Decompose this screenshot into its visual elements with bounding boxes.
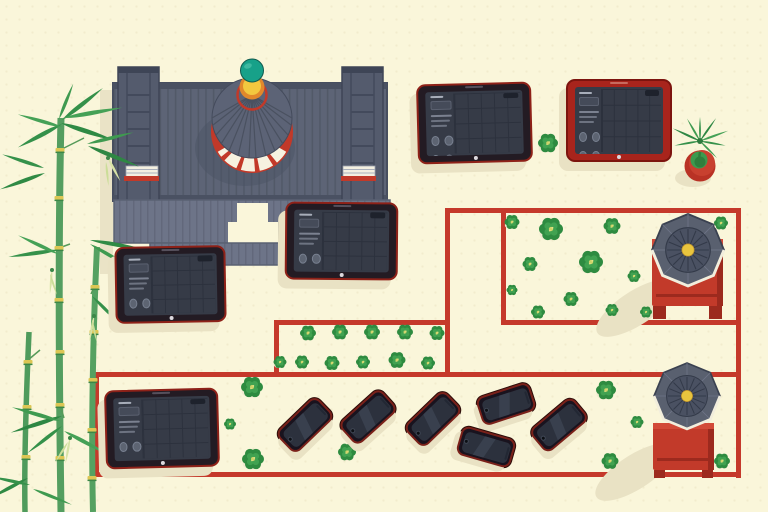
tablet-screen-button <box>503 92 519 98</box>
phone-device <box>337 387 399 447</box>
tablet-calendar-grid <box>150 255 215 313</box>
sidebar-icon-row <box>431 136 454 147</box>
tablet-calendar-grid <box>321 212 387 271</box>
sidebar-icon-row <box>129 299 151 309</box>
phone-device <box>402 389 463 449</box>
tablet-speaker <box>333 205 351 207</box>
sidebar-icon-row <box>299 254 321 264</box>
tablet-screen <box>113 396 211 461</box>
phone-device <box>528 396 590 455</box>
sidebar-icon-row <box>579 151 599 154</box>
tablet-screen <box>575 87 663 154</box>
tablet-screen-sidebar <box>430 96 454 152</box>
device-layer <box>0 0 768 512</box>
illustration-stage <box>0 0 768 512</box>
tablet-screen-sidebar <box>299 214 321 268</box>
tablet-screen-sidebar <box>579 92 599 150</box>
tablet-screen-button <box>370 213 385 219</box>
tablet-screen-sidebar <box>118 402 141 457</box>
phone-screen <box>534 402 584 448</box>
phone-device <box>475 381 538 427</box>
tablet-screen <box>123 253 217 316</box>
tablet-device <box>104 388 220 470</box>
tablet-logo <box>617 155 621 159</box>
tablet-screen-button <box>198 256 213 262</box>
phone-screen <box>344 393 393 440</box>
sidebar-icon-row <box>432 155 455 156</box>
tablet-screen-sidebar <box>128 259 150 312</box>
tablet-logo <box>161 461 165 465</box>
tablet-speaker <box>610 82 628 84</box>
phone-device <box>274 395 335 455</box>
tablet-calendar-grid <box>453 92 521 154</box>
phone-screen <box>281 401 329 449</box>
tablet-calendar-grid <box>141 398 209 459</box>
tablet-screen-button <box>645 90 659 96</box>
tablet-device <box>416 82 533 165</box>
phone-device <box>455 425 517 469</box>
tablet-logo <box>169 316 173 320</box>
sidebar-icon-row <box>579 132 599 142</box>
tablet-device <box>285 202 399 281</box>
sidebar-icon-row <box>119 442 141 453</box>
tablet-calendar-grid <box>601 89 662 152</box>
tablet-device <box>566 79 672 162</box>
tablet-logo <box>339 273 343 277</box>
tablet-screen-button <box>190 398 206 404</box>
tablet-device <box>114 245 226 324</box>
tablet-speaker <box>161 249 179 251</box>
tablet-screen <box>425 90 524 157</box>
phone-screen <box>409 395 457 443</box>
tablet-screen <box>294 210 390 273</box>
tablet-speaker <box>465 86 483 88</box>
tablet-speaker <box>152 392 170 394</box>
tablet-logo <box>473 156 477 160</box>
